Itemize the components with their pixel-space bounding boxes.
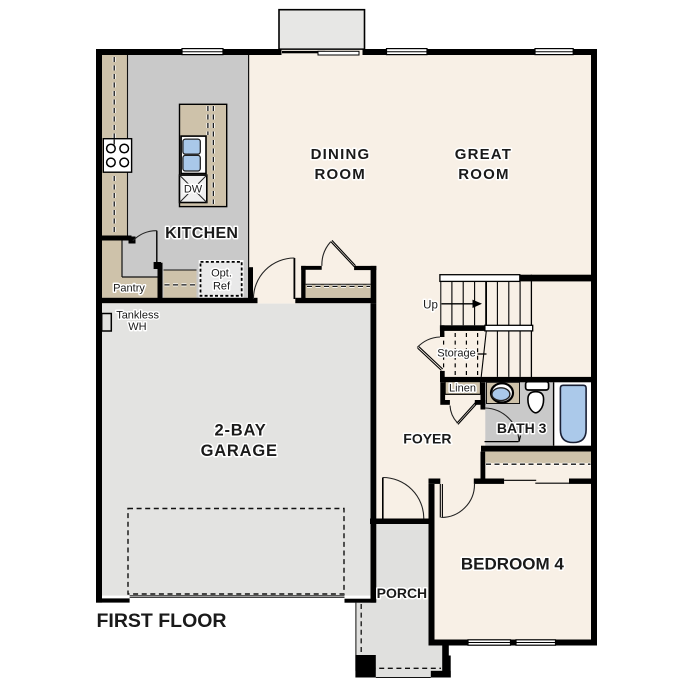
svg-text:ROOM: ROOM [314,166,365,183]
svg-text:Up: Up [423,299,438,311]
svg-text:DW: DW [184,183,203,195]
svg-text:DINING: DINING [311,146,371,163]
svg-text:GARAGE: GARAGE [201,442,278,460]
svg-text:Opt.: Opt. [211,268,232,280]
svg-text:ROOM: ROOM [458,166,509,183]
svg-text:GREAT: GREAT [455,146,512,163]
svg-text:KITCHEN: KITCHEN [165,225,238,242]
svg-text:FOYER: FOYER [403,431,451,447]
svg-text:Pantry: Pantry [113,283,145,295]
svg-text:Linen: Linen [449,383,476,395]
svg-text:2-BAY: 2-BAY [215,421,267,439]
svg-text:Tankless: Tankless [116,310,159,322]
svg-text:BEDROOM 4: BEDROOM 4 [461,555,565,574]
svg-text:WH: WH [128,321,146,333]
svg-text:Storage: Storage [437,347,476,359]
svg-text:FIRST FLOOR: FIRST FLOOR [97,610,227,632]
svg-text:BATH 3: BATH 3 [497,420,547,436]
svg-text:PORCH: PORCH [377,585,428,601]
svg-text:Ref: Ref [213,281,231,293]
